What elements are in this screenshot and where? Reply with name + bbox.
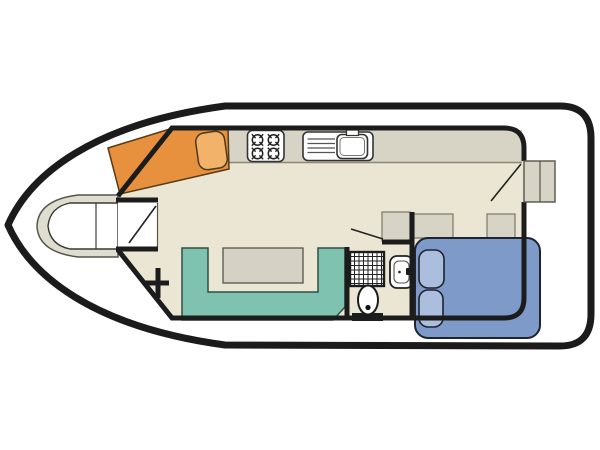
stove-burner <box>252 134 263 145</box>
bathroom-cabinet <box>382 212 410 241</box>
v-berth-mattress <box>48 203 118 249</box>
locker-floor <box>118 202 158 248</box>
saloon-table <box>223 248 303 283</box>
stove-burner <box>268 148 279 159</box>
shower-tray <box>350 252 384 286</box>
bow-berth <box>37 195 118 257</box>
stove-burner <box>252 148 263 159</box>
faucet-base <box>347 130 359 136</box>
washbasin-drain <box>398 271 401 274</box>
boat-floorplan-canvas <box>0 0 600 450</box>
toilet-bowl <box>358 286 378 315</box>
pillow-top <box>419 250 444 288</box>
bedroom-cabinet-left <box>414 214 453 238</box>
dinette-table <box>195 130 229 171</box>
pillow-bottom <box>419 290 443 327</box>
cooktop <box>248 131 285 162</box>
double-bed <box>415 238 540 338</box>
sink-unit <box>303 127 373 161</box>
bow-locker <box>118 202 158 248</box>
bedroom-cabinet-right <box>487 214 515 238</box>
stove-burner <box>268 134 279 145</box>
toilet-drain <box>365 305 370 310</box>
boat-floorplan <box>0 0 600 450</box>
